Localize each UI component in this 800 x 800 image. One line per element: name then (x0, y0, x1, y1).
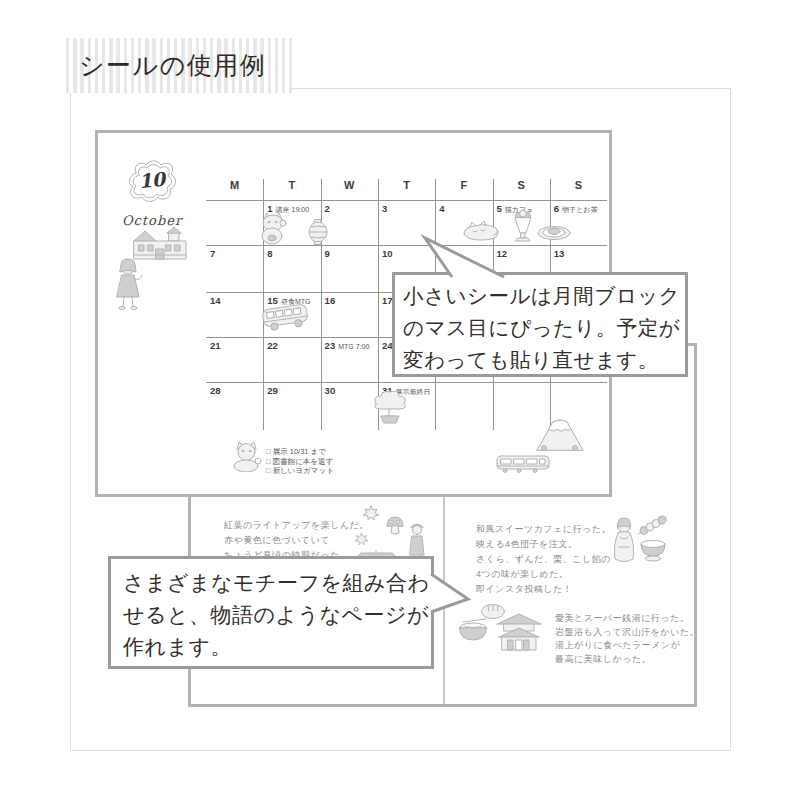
date-number: 22 (267, 340, 278, 351)
ramen-bowl-icon (458, 618, 488, 646)
paper-lantern-icon (307, 219, 329, 245)
calendar-cell: 30 (325, 385, 336, 396)
bubble-line: さまざまなモチーフを組み合わ (123, 567, 431, 599)
maneki-neko-icon (255, 211, 291, 245)
journal-line: 湯上がりに食べたラーメンが (555, 639, 699, 653)
checklist-item: 新しいヨガマット (266, 466, 334, 476)
month-name: October (114, 213, 190, 228)
maple-leaf-icon (354, 532, 369, 546)
date-number: 28 (210, 385, 221, 396)
journal-line: さくら、ずんだ、栗、こし餡の (476, 552, 611, 567)
journal-line: 映える4色団子を注文。 (476, 537, 611, 552)
speech-bubble-tail (412, 230, 512, 280)
maple-leaf-icon (362, 505, 380, 521)
journal-line: 赤や黄色に色づいていて (224, 533, 369, 548)
calendar-cell: 2 (325, 203, 330, 214)
bonsai-tree-icon (369, 389, 411, 425)
date-note: MTG 7:00 (338, 343, 369, 350)
journal-line: 即インスタ投稿した！ (476, 582, 611, 597)
dango-skewer-icon (636, 513, 668, 537)
calendar-cell: 23MTG 7:00 (325, 340, 370, 351)
date-number: 2 (325, 203, 330, 214)
date-number: 23 (325, 340, 336, 351)
journal-line: 紅葉のライトアップを楽しんだ。 (224, 518, 369, 533)
calendar-cell: 28 (210, 385, 221, 396)
calendar-cell: 7 (210, 248, 215, 259)
bubble-line: 作れます。 (123, 631, 431, 663)
weekday-header: S (493, 179, 550, 191)
checklist-item: 展示 10/31 まで (266, 447, 334, 457)
title-banner: シールの使用例 (66, 38, 292, 93)
bubble-line: 小さいシールは月間ブロック (403, 280, 681, 312)
calendar-cell: 6明子とお茶 (554, 203, 598, 215)
bubble-line: 変わっても貼り直せます。 (403, 344, 681, 376)
weekday-header: T (378, 179, 435, 191)
page-title: シールの使用例 (79, 49, 266, 82)
weekday-header: M (206, 179, 263, 191)
calendar-cell: 3 (382, 203, 387, 214)
calendar-checklist: 展示 10/31 まで図書館に本を返す新しいヨガマット (266, 447, 334, 476)
speech-bubble-monthly: 小さいシールは月間ブロックのマス目にぴったり。予定が変わっても貼り直せます。 (392, 272, 688, 377)
date-note: 明子とお茶 (562, 206, 597, 213)
weekday-header: S (550, 179, 607, 191)
journal-right-entry-2: 愛美とスーパー銭湯に行った。岩盤浴も入って沢山汗をかいた。湯上がりに食べたラーメ… (555, 612, 699, 666)
weekday-header: F (435, 179, 492, 191)
grid-line (206, 245, 607, 246)
mushroom-icon (385, 515, 405, 535)
date-number: 9 (325, 248, 330, 259)
grid-line (206, 382, 607, 383)
product-usage-image: シールの使用例 紅葉のライトアップを楽しんだ。赤や黄色に色づいていてちょうど見頃… (0, 0, 800, 800)
mt-fuji-icon (534, 415, 586, 453)
date-number: 10 (382, 248, 393, 259)
grid-line (321, 179, 322, 430)
train-icon (495, 453, 551, 473)
calendar-cell: 16 (325, 295, 336, 306)
date-number: 13 (554, 248, 565, 259)
kimono-person-icon (610, 517, 638, 567)
bathhouse-icon (495, 611, 543, 651)
calendar-cell: 8 (267, 248, 272, 259)
journal-right-entry-1: 和風スイーツカフェに行った。映える4色団子を注文。さくら、ずんだ、栗、こし餡の4… (476, 522, 611, 597)
date-number: 14 (210, 295, 221, 306)
journal-line: 愛美とスーパー銭湯に行った。 (555, 612, 699, 626)
walking-girl-icon (111, 257, 147, 311)
journal-line: 和風スイーツカフェに行った。 (476, 522, 611, 537)
date-number: 6 (554, 203, 559, 214)
matcha-bowl-icon (638, 537, 668, 563)
parfait-icon (510, 209, 536, 243)
calendar-cell: 13 (554, 248, 565, 259)
calendar-cell: 22 (267, 340, 278, 351)
calendar-cell: 24 (382, 340, 393, 351)
date-number: 29 (267, 385, 278, 396)
date-number: 24 (382, 340, 393, 351)
date-number: 7 (210, 248, 215, 259)
date-number: 21 (210, 340, 221, 351)
date-number: 17 (382, 295, 393, 306)
speech-bubble-motif: さまざまなモチーフを組み合わせると、物語のようなページが作れます。 (108, 556, 434, 669)
bubble-line: のマス目にぴったり。予定が (403, 312, 681, 344)
date-number: 4 (439, 203, 444, 214)
calendar-cell: 14 (210, 295, 221, 306)
calendar-cell: 21 (210, 340, 221, 351)
checklist-item: 図書館に本を返す (266, 457, 334, 467)
weekday-header: T (263, 179, 320, 191)
date-number: 3 (382, 203, 387, 214)
date-number: 16 (325, 295, 336, 306)
grid-line (206, 200, 607, 201)
journal-line: 最高に美味しかった。 (555, 653, 699, 667)
calendar-cell: 10 (382, 248, 393, 259)
calendar-cell: 29 (267, 385, 278, 396)
date-number: 8 (267, 248, 272, 259)
bubble-line: せると、物語のようなページが (123, 599, 431, 631)
date-number: 5 (497, 203, 502, 214)
western-mansion-icon (131, 227, 189, 261)
shiba-dog-icon (228, 440, 264, 472)
journal-line: 岩盤浴も入って沢山汗をかいた。 (555, 626, 699, 640)
weekday-header: W (321, 179, 378, 191)
calendar-cell: 17 (382, 295, 393, 306)
calendar-cell: 9 (325, 248, 330, 259)
date-number: 30 (325, 385, 336, 396)
calendar-cell: 4 (439, 203, 444, 214)
journal-line: 4つの味が楽しめた。 (476, 567, 611, 582)
dessert-plate-icon (537, 221, 571, 241)
speech-bubble-tail (426, 566, 476, 616)
month-number: 10 (122, 155, 183, 207)
